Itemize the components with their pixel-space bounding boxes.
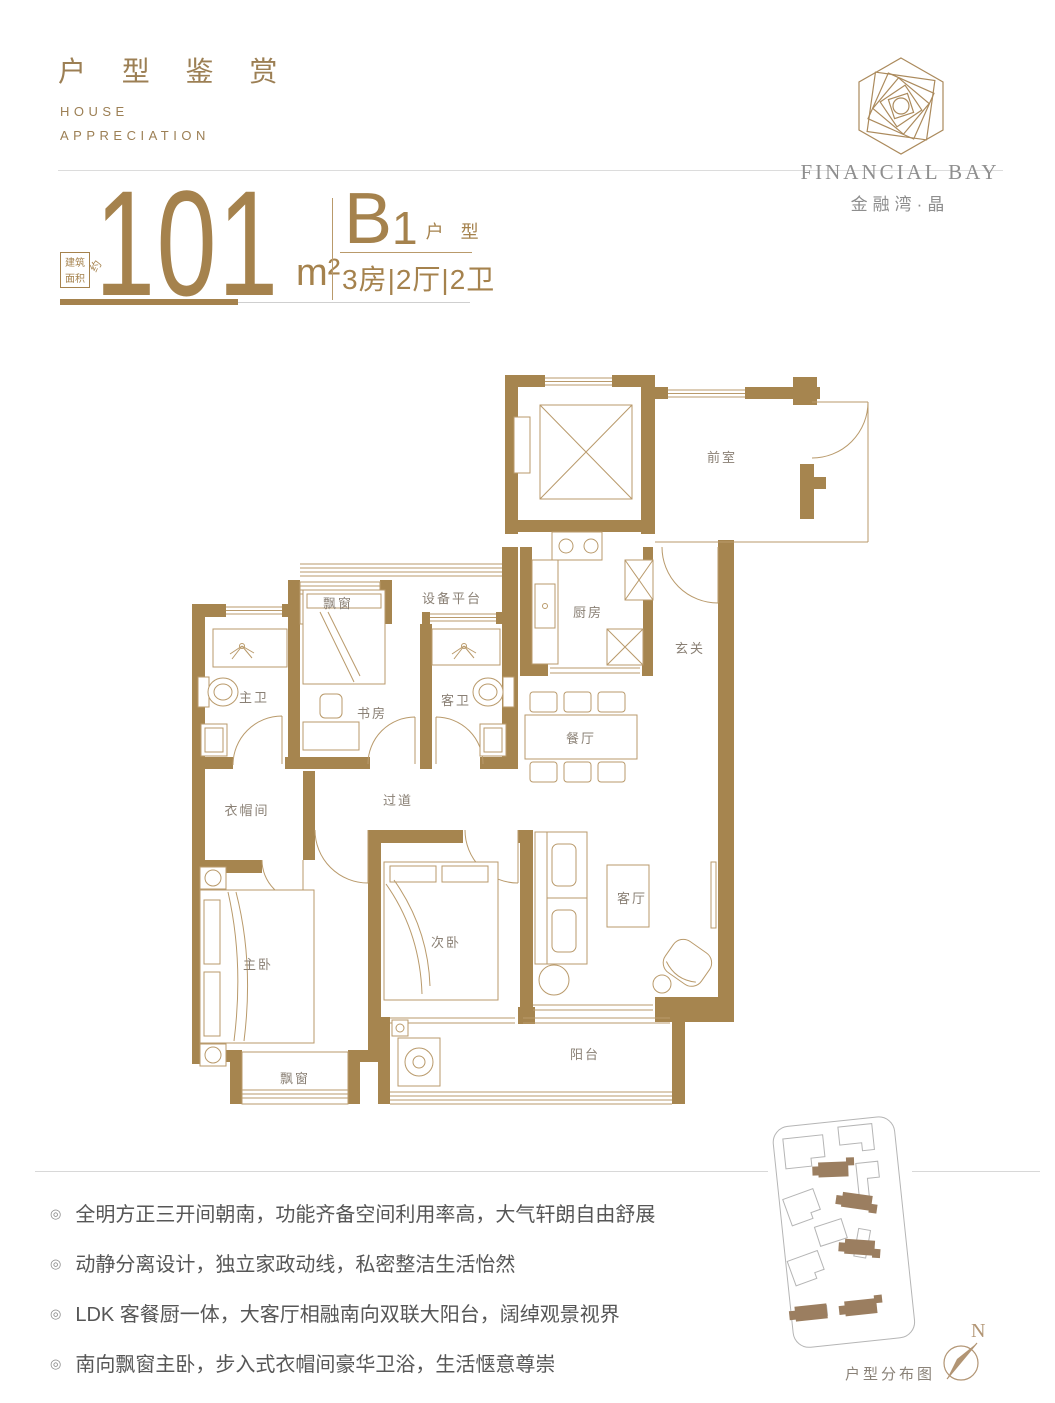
brand-name-en: FINANCIAL BAY bbox=[793, 160, 1007, 185]
area-label-line2: 面积 bbox=[61, 272, 89, 288]
unit-underline bbox=[340, 252, 472, 253]
kitchen-fixtures bbox=[532, 532, 602, 664]
compass-north-label: N bbox=[971, 1320, 985, 1342]
study-furniture bbox=[303, 590, 385, 750]
room-label-master-bedroom: 主卧 bbox=[243, 957, 273, 972]
feature-item: ◎ 动静分离设计，独立家政动线，私密整洁生活怡然 bbox=[50, 1253, 750, 1277]
feature-text-3: LDK 客餐厨一体，大客厅相融南向双联大阳台，阔绰观景视界 bbox=[75, 1303, 619, 1327]
floorplan-drawing: 前室 厨房 玄关 餐厅 设备平台 飘窗 主卫 书房 客卫 衣帽间 过道 主卧 次… bbox=[170, 362, 940, 1112]
area-label-line1: 建筑 bbox=[61, 256, 89, 272]
page-subtitle: HOUSE APPRECIATION bbox=[60, 100, 210, 148]
bullet-icon: ◎ bbox=[50, 1206, 61, 1222]
feature-item: ◎ 南向飘窗主卧，步入式衣帽间豪华卫浴，生活惬意尊崇 bbox=[50, 1353, 750, 1377]
room-label-balcony: 阳台 bbox=[570, 1047, 600, 1062]
siteplan-map bbox=[765, 1103, 945, 1363]
room-label-cloakroom: 衣帽间 bbox=[224, 803, 269, 818]
unit-type-label: 户 型 bbox=[426, 218, 485, 252]
compass-icon: N bbox=[935, 1315, 997, 1393]
brand-name-cn: 金融湾·晶 bbox=[793, 190, 1007, 215]
room-label-second-bedroom: 次卧 bbox=[431, 935, 461, 950]
area-value: 101 bbox=[95, 168, 280, 318]
room-label-kitchen: 厨房 bbox=[573, 605, 603, 620]
accent-line bbox=[238, 302, 470, 303]
room-label-foyer: 玄关 bbox=[675, 641, 705, 656]
second-bedroom-furniture bbox=[384, 862, 498, 1000]
unit-code-row: B 1 户 型 bbox=[344, 186, 485, 252]
layout-text: 3房|2厅|2卫 bbox=[342, 258, 495, 298]
room-label-baywindow-bottom: 飘窗 bbox=[280, 1071, 310, 1086]
accent-bar bbox=[60, 299, 238, 305]
bottom-divider-left bbox=[35, 1171, 768, 1172]
page-subtitle-line2: APPRECIATION bbox=[60, 124, 210, 148]
feature-text-1: 全明方正三开间朝南，功能齐备空间利用率高，大气轩朗自由舒展 bbox=[75, 1203, 655, 1227]
feature-text-2: 动静分离设计，独立家政动线，私密整洁生活怡然 bbox=[75, 1253, 515, 1277]
room-label-dining: 餐厅 bbox=[566, 731, 596, 746]
room-label-guest-bath: 客卫 bbox=[441, 693, 471, 708]
hexagon-spiral-logo-icon bbox=[848, 56, 954, 156]
room-label-master-bath: 主卫 bbox=[239, 690, 269, 705]
feature-item: ◎ 全明方正三开间朝南，功能齐备空间利用率高，大气轩朗自由舒展 bbox=[50, 1203, 750, 1227]
room-label-baywindow-top: 飘窗 bbox=[323, 596, 353, 611]
area-label-box: 建筑 面积 bbox=[60, 252, 90, 288]
unit-code: B bbox=[344, 186, 392, 252]
feature-item: ◎ LDK 客餐厨一体，大客厅相融南向双联大阳台，阔绰观景视界 bbox=[50, 1303, 750, 1327]
room-label-living-room: 客厅 bbox=[617, 891, 647, 906]
room-label-front-room: 前室 bbox=[707, 450, 737, 465]
bullet-icon: ◎ bbox=[50, 1356, 61, 1372]
bullet-icon: ◎ bbox=[50, 1306, 61, 1322]
room-label-equipment-platform: 设备平台 bbox=[422, 591, 482, 606]
unit-number: 1 bbox=[392, 204, 418, 252]
feature-list: ◎ 全明方正三开间朝南，功能齐备空间利用率高，大气轩朗自由舒展 ◎ 动静分离设计… bbox=[50, 1203, 750, 1403]
area-unit: m² bbox=[296, 252, 340, 295]
page-title: 户 型 鉴 赏 bbox=[58, 50, 291, 90]
page-subtitle-line1: HOUSE bbox=[60, 100, 210, 124]
living-room-furniture bbox=[535, 832, 716, 995]
balcony-fixtures bbox=[392, 1020, 440, 1086]
feature-text-4: 南向飘窗主卧，步入式衣帽间豪华卫浴，生活惬意尊崇 bbox=[75, 1353, 555, 1377]
spec-divider bbox=[332, 198, 333, 300]
room-label-hallway: 过道 bbox=[383, 793, 413, 808]
room-label-study: 书房 bbox=[357, 706, 387, 721]
bullet-icon: ◎ bbox=[50, 1256, 61, 1272]
